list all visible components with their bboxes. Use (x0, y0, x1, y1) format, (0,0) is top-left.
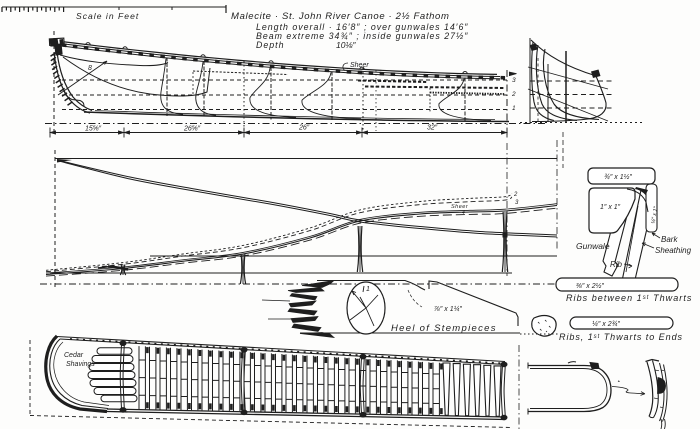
svg-text:Ribs between 1st Thwarts: Ribs between 1st Thwarts (566, 293, 692, 303)
svg-text:1: 1 (512, 105, 516, 112)
svg-text:Beam extreme 34¾″ ; inside g: Beam extreme 34¾″ ; inside gunwales 27½″ (256, 31, 469, 41)
svg-text:Bark: Bark (661, 235, 678, 244)
svg-text:⅜″ x 2½″: ⅜″ x 2½″ (576, 282, 604, 290)
svg-text:Sheer: Sheer (350, 62, 369, 69)
svg-text:Sheathing: Sheathing (655, 246, 692, 255)
svg-text:Ribs, 1st Thwarts to Ends: Ribs, 1st Thwarts to Ends (559, 332, 683, 342)
svg-text:3: 3 (512, 77, 516, 84)
svg-text:Scale in Feet: Scale in Feet (76, 11, 139, 21)
svg-text:8: 8 (88, 65, 92, 72)
svg-text:Heel of Stempieces: Heel of Stempieces (391, 323, 497, 334)
svg-text:1″ x 1″: 1″ x 1″ (600, 204, 621, 211)
svg-text:10⅛″: 10⅛″ (336, 40, 357, 50)
svg-text:2: 2 (511, 91, 516, 98)
svg-text:32″: 32″ (427, 125, 438, 132)
svg-text:Cedar: Cedar (64, 352, 84, 359)
svg-text:⅞″ x 1¼″: ⅞″ x 1¼″ (434, 306, 462, 313)
svg-text:Malecite · St. John River Cano: Malecite · St. John River Canoe · 2½ Fat… (231, 11, 450, 22)
svg-text:4: 4 (462, 210, 465, 216)
svg-text:26⅝″: 26⅝″ (183, 126, 201, 133)
svg-text:Gunwale: Gunwale (576, 241, 610, 251)
svg-text:¼″ x 2¾″: ¼″ x 2¾″ (592, 321, 620, 328)
svg-text:Rib: Rib (610, 260, 623, 269)
svg-text:Shavings: Shavings (66, 361, 95, 368)
svg-text:1: 1 (366, 286, 370, 293)
svg-text:2: 2 (513, 192, 518, 198)
svg-text:Sheer: Sheer (451, 204, 469, 210)
svg-text:26″: 26″ (298, 125, 310, 132)
svg-text:¾″ x 1½″: ¾″ x 1½″ (604, 173, 632, 181)
svg-text:Depth: Depth (256, 40, 284, 50)
svg-text:15⅝″: 15⅝″ (85, 126, 102, 133)
